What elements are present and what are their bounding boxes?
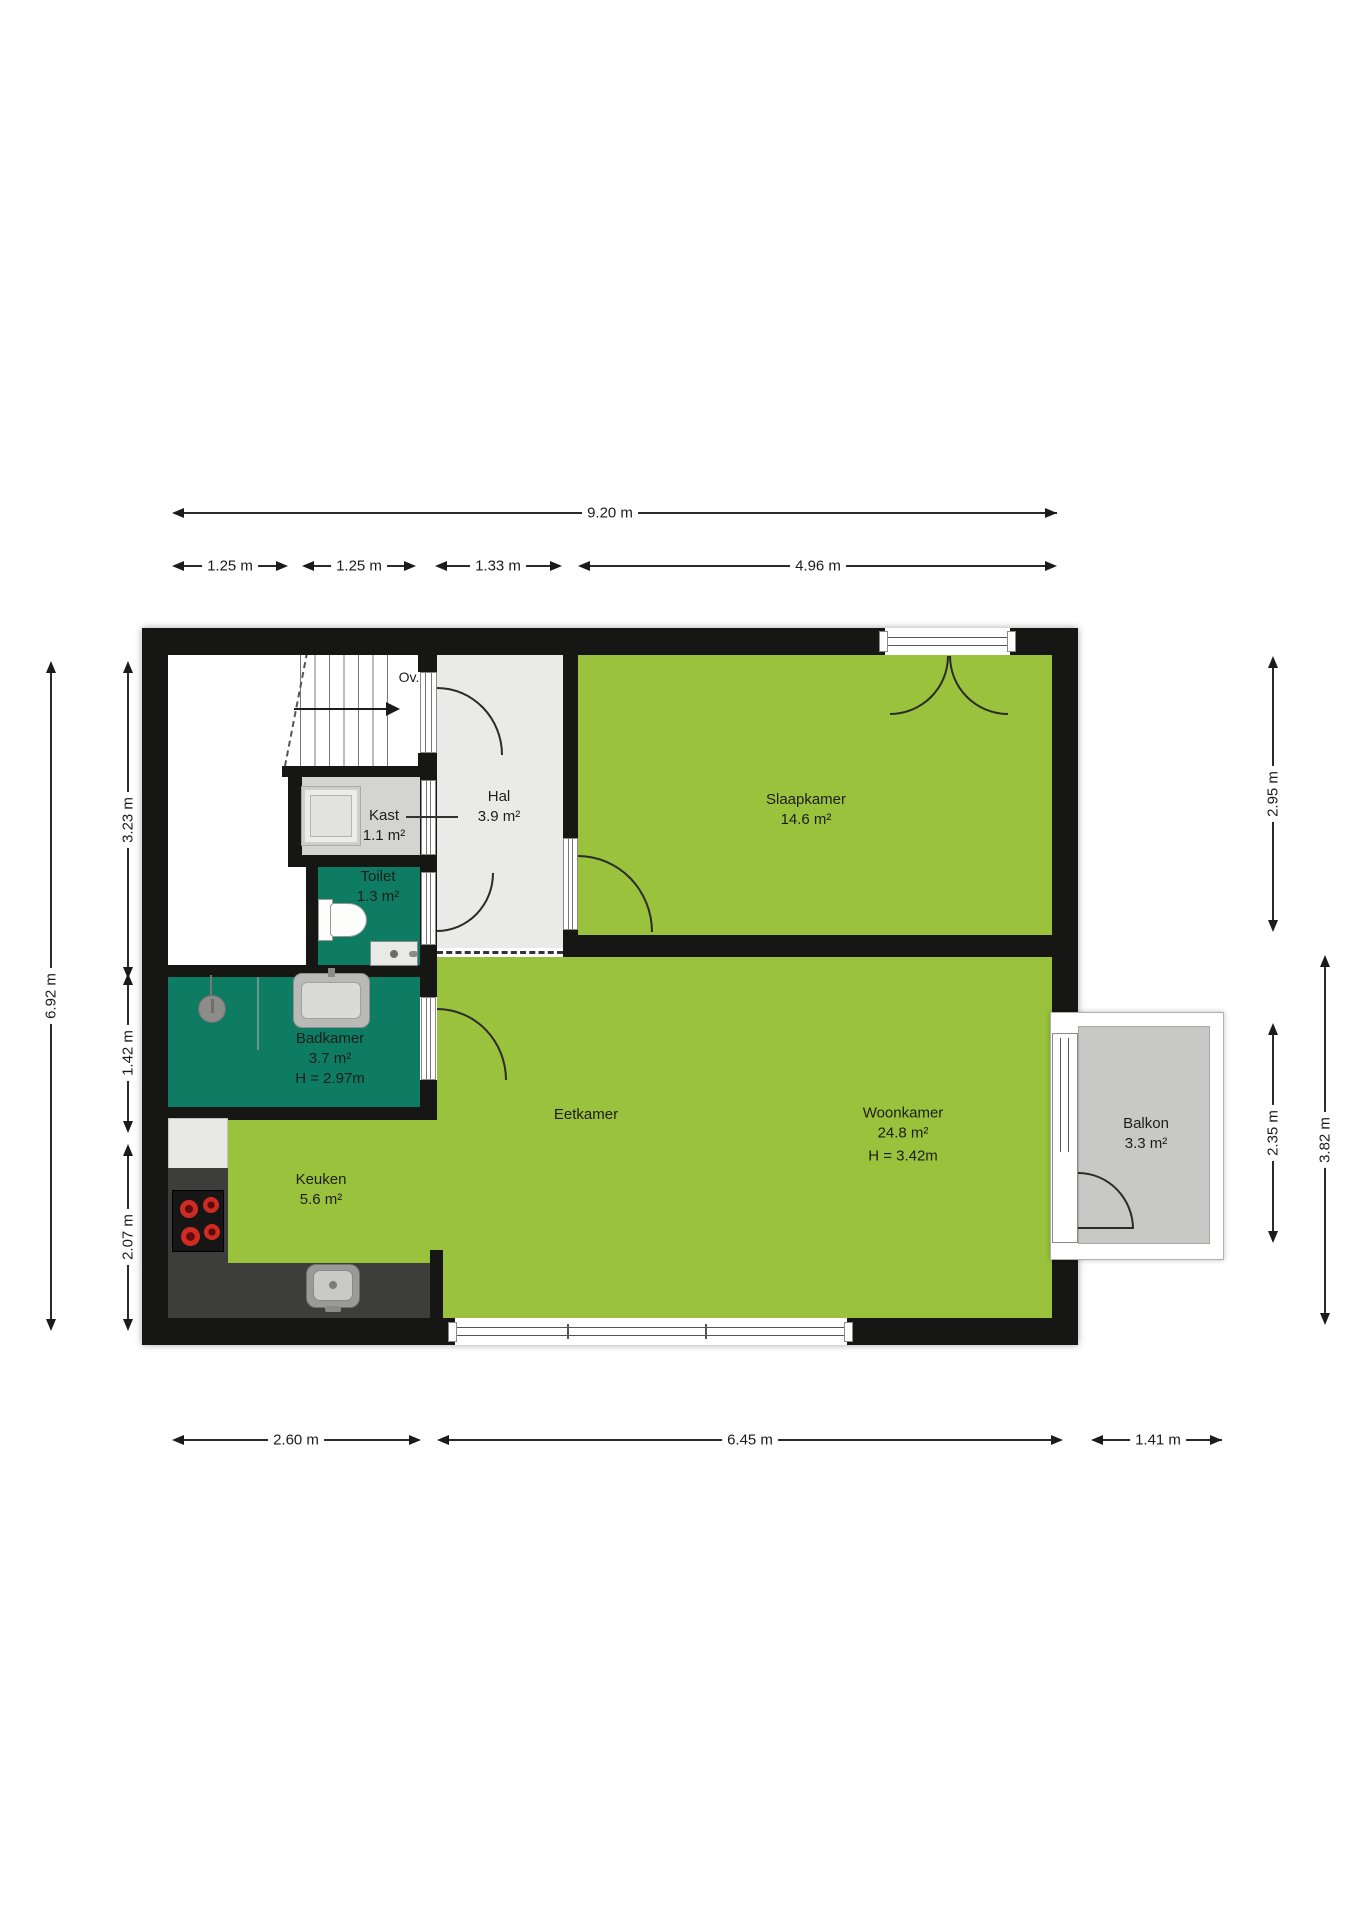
woonkamer-name: Woonkamer <box>863 1104 944 1124</box>
dim-right-seg1-label: 2.95 m <box>1265 766 1282 822</box>
wall-left <box>142 655 168 1345</box>
dim-right-seg3-label: 3.82 m <box>1317 1112 1334 1168</box>
wall-window-stub <box>430 1250 443 1318</box>
stove-icon <box>172 1190 224 1252</box>
threshold-dash <box>437 951 563 954</box>
living-window-line2 <box>451 1335 851 1336</box>
slaapkamer-area: 14.6 m² <box>766 810 846 830</box>
keuken-cabinet-block <box>168 1118 228 1170</box>
hal-area: 3.9 m² <box>478 807 521 827</box>
slaapkamer-name: Slaapkamer <box>766 790 846 810</box>
dim-top-seg1-label: 1.25 m <box>202 558 258 575</box>
balcony-door-leaf <box>1078 1227 1132 1229</box>
living-window-cap-right <box>844 1322 853 1342</box>
toilet-name: Toilet <box>357 867 400 887</box>
dim-top-seg2-label: 1.25 m <box>331 558 387 575</box>
label-balkon: Balkon 3.3 m² <box>1123 1114 1169 1154</box>
label-ov: Ov. <box>399 667 420 687</box>
badkamer-sink-icon <box>293 973 370 1028</box>
balcony-window-jamb <box>1052 1033 1078 1243</box>
dim-left-seg3-label: 2.07 m <box>120 1209 137 1265</box>
toilet-door-jamb <box>421 872 436 945</box>
shower-head-icon <box>198 995 226 1023</box>
wall-badkamer-right-upper <box>420 948 437 997</box>
balkon-area: 3.3 m² <box>1123 1134 1169 1154</box>
wall-hal-slaapkamer-upper <box>563 655 578 838</box>
burner-2 <box>203 1197 219 1213</box>
label-keuken: Keuken 5.6 m² <box>296 1170 347 1210</box>
keuken-counter-bottom <box>168 1263 430 1318</box>
dim-bottom-seg3-label: 1.41 m <box>1130 1432 1186 1449</box>
stair-treads <box>300 655 400 766</box>
balcony-window-line2 <box>1068 1038 1069 1152</box>
label-slaapkamer: Slaapkamer 14.6 m² <box>766 790 846 830</box>
balkon-name: Balkon <box>1123 1114 1169 1134</box>
label-eetkamer: Eetkamer <box>554 1105 618 1125</box>
wall-right-upper <box>1052 655 1078 1033</box>
badkamer-area: 3.7 m² <box>295 1049 365 1069</box>
slaapkamer-window-line1 <box>881 637 1014 638</box>
badkamer-sink-basin <box>301 982 361 1019</box>
hal-name: Hal <box>478 787 521 807</box>
shower-divider <box>257 977 259 1050</box>
living-window-tick1 <box>567 1324 569 1339</box>
wall-toilet-left <box>306 867 318 965</box>
toilet-washbasin-icon <box>370 941 418 966</box>
stair-direction-arrow <box>386 702 400 716</box>
label-hal: Hal 3.9 m² <box>478 787 521 827</box>
label-badkamer: Badkamer 3.7 m² H = 2.97m <box>295 1029 365 1089</box>
living-window <box>455 1320 847 1345</box>
kast-leader-line <box>406 816 458 818</box>
dim-left-total-label: 6.92 m <box>43 968 60 1024</box>
wall-top-right <box>1010 628 1078 655</box>
eetkamer-name: Eetkamer <box>554 1105 618 1125</box>
wall-stairs-top <box>418 653 437 672</box>
floorplan-canvas: Ov. Hal 3.9 m² Kast 1.1 m² Toilet 1.3 m²… <box>0 0 1358 1920</box>
badkamer-name: Badkamer <box>295 1029 365 1049</box>
dim-bottom-seg1-label: 2.60 m <box>268 1432 324 1449</box>
wall-bottom-left <box>142 1318 455 1345</box>
stair-direction-line <box>294 708 386 710</box>
label-kast: Kast 1.1 m² <box>363 806 406 846</box>
badkamer-door-jamb <box>421 997 436 1080</box>
dim-left-seg2-label: 1.42 m <box>120 1025 137 1081</box>
washbasin-tap <box>409 951 418 957</box>
label-toilet: Toilet 1.3 m² <box>357 867 400 907</box>
washbasin-drain <box>390 950 398 958</box>
burner-4 <box>204 1224 220 1240</box>
living-window-tick2 <box>705 1324 707 1339</box>
wall-stairs-kast <box>282 766 437 777</box>
badkamer-sink-tap <box>328 968 335 977</box>
slaapkamer-window-cap-left <box>879 631 888 652</box>
living-window-line1 <box>451 1327 851 1328</box>
wall-kast-toilet <box>288 855 437 867</box>
living-window-cap-left <box>448 1322 457 1342</box>
badkamer-height: H = 2.97m <box>295 1069 365 1089</box>
dim-bottom-seg2-label: 6.45 m <box>722 1432 778 1449</box>
dim-top-seg3-label: 1.33 m <box>470 558 526 575</box>
slaapkamer-window <box>885 628 1010 655</box>
keuken-sink-drain <box>329 1281 337 1289</box>
wall-top-left <box>142 628 885 655</box>
kast-cabinet-icon <box>302 787 360 845</box>
wall-bottom-right <box>847 1318 1078 1345</box>
kast-area: 1.1 m² <box>363 826 406 846</box>
dim-top-seg4-label: 4.96 m <box>790 558 846 575</box>
label-woonkamer: Woonkamer 24.8 m² H = 3.42m <box>863 1104 944 1167</box>
dim-right-seg2-label: 2.35 m <box>1265 1105 1282 1161</box>
wall-kast-left <box>288 777 302 855</box>
front-door-jamb <box>420 672 437 753</box>
shower-stem <box>210 975 212 997</box>
slaapkamer-window-line2 <box>881 645 1014 646</box>
burner-3 <box>181 1227 200 1246</box>
balcony-window-line1 <box>1060 1038 1061 1152</box>
slaapkamer-door-jamb <box>563 838 578 930</box>
room-woonkamer-eetkamer <box>437 957 1052 1318</box>
kast-name: Kast <box>363 806 406 826</box>
woonkamer-area: 24.8 m² <box>863 1124 944 1144</box>
slaapkamer-window-cap-right <box>1007 631 1016 652</box>
dim-top-total-label: 9.20 m <box>582 505 638 522</box>
keuken-name: Keuken <box>296 1170 347 1190</box>
keuken-area: 5.6 m² <box>296 1190 347 1210</box>
burner-1 <box>180 1200 198 1218</box>
shower-head-pivot <box>211 999 214 1013</box>
woonkamer-height: H = 3.42m <box>863 1147 944 1167</box>
toilet-area: 1.3 m² <box>357 887 400 907</box>
kast-cabinet-inner <box>310 795 352 837</box>
dim-left-seg1-label: 3.23 m <box>120 792 137 848</box>
toilet-bowl-icon <box>330 903 367 937</box>
keuken-sink-icon <box>306 1264 360 1308</box>
hal-eetkamer-threshold <box>437 948 563 957</box>
keuken-sink-tap <box>325 1306 341 1312</box>
wall-slaapkamer-woonkamer <box>563 935 1078 957</box>
